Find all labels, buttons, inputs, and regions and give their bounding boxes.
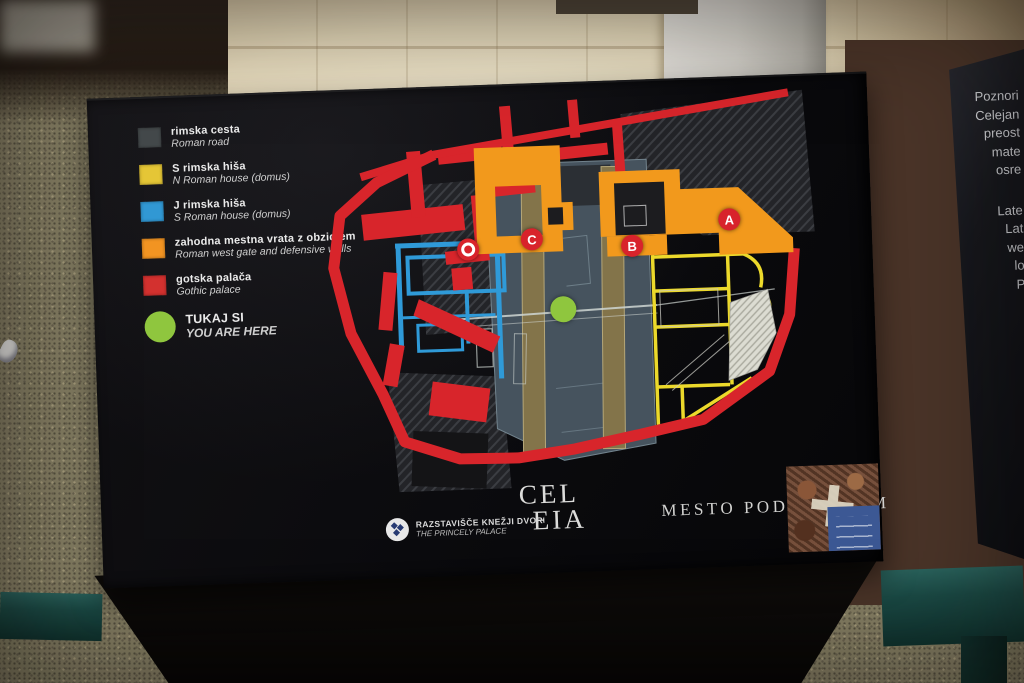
legend-swatch-n-roman-house [139,164,163,185]
adjacent-panel-text: Poznori Celejan preost mate osre Late La… [932,87,1024,297]
inset-photo-caption [827,505,881,551]
legend-swatch-s-roman-house [140,201,164,222]
text-fragment: P [939,275,1024,296]
legend-swatch-gothic-palace [143,275,167,296]
text-fragment: we [938,238,1024,259]
marker-letter: C [527,232,537,247]
museum-map-panel: rimska cesta Roman road S rimska hiša N … [87,72,884,589]
marker-letter: A [724,212,734,227]
railing-left [0,592,102,641]
railing-right [881,566,1024,647]
legend-label-en: YOU ARE HERE [186,323,277,340]
legend-swatch-roman-road [138,127,162,148]
text-fragment: preost [934,124,1021,145]
three-stars-icon [389,522,407,538]
inset-photo [786,463,881,552]
exhibition-branding: RAZSTAVIŠČE KNEŽJI DVOR THE PRINCELY PAL… [386,513,544,541]
text-fragment: Poznori [932,87,1019,108]
legend-label-en: Roman road [171,135,240,149]
celeia-archaeological-map [320,79,834,496]
legend-label-en: Gothic palace [176,283,252,298]
n-roman-house-outlines [660,288,732,390]
marker-letter: B [627,238,637,253]
ring-marker-inner [461,242,475,256]
legend-swatch-west-gate [142,238,166,259]
text-fragment: osre [935,161,1022,182]
text-fragment: Lat [937,219,1024,240]
railing-post [961,636,1007,683]
shoe-tip [0,337,21,365]
corridor-blur [0,0,95,52]
ceiling-lintel [556,0,698,14]
exhibition-logo-icon [386,518,410,542]
you-are-here-legend-dot [144,311,176,343]
